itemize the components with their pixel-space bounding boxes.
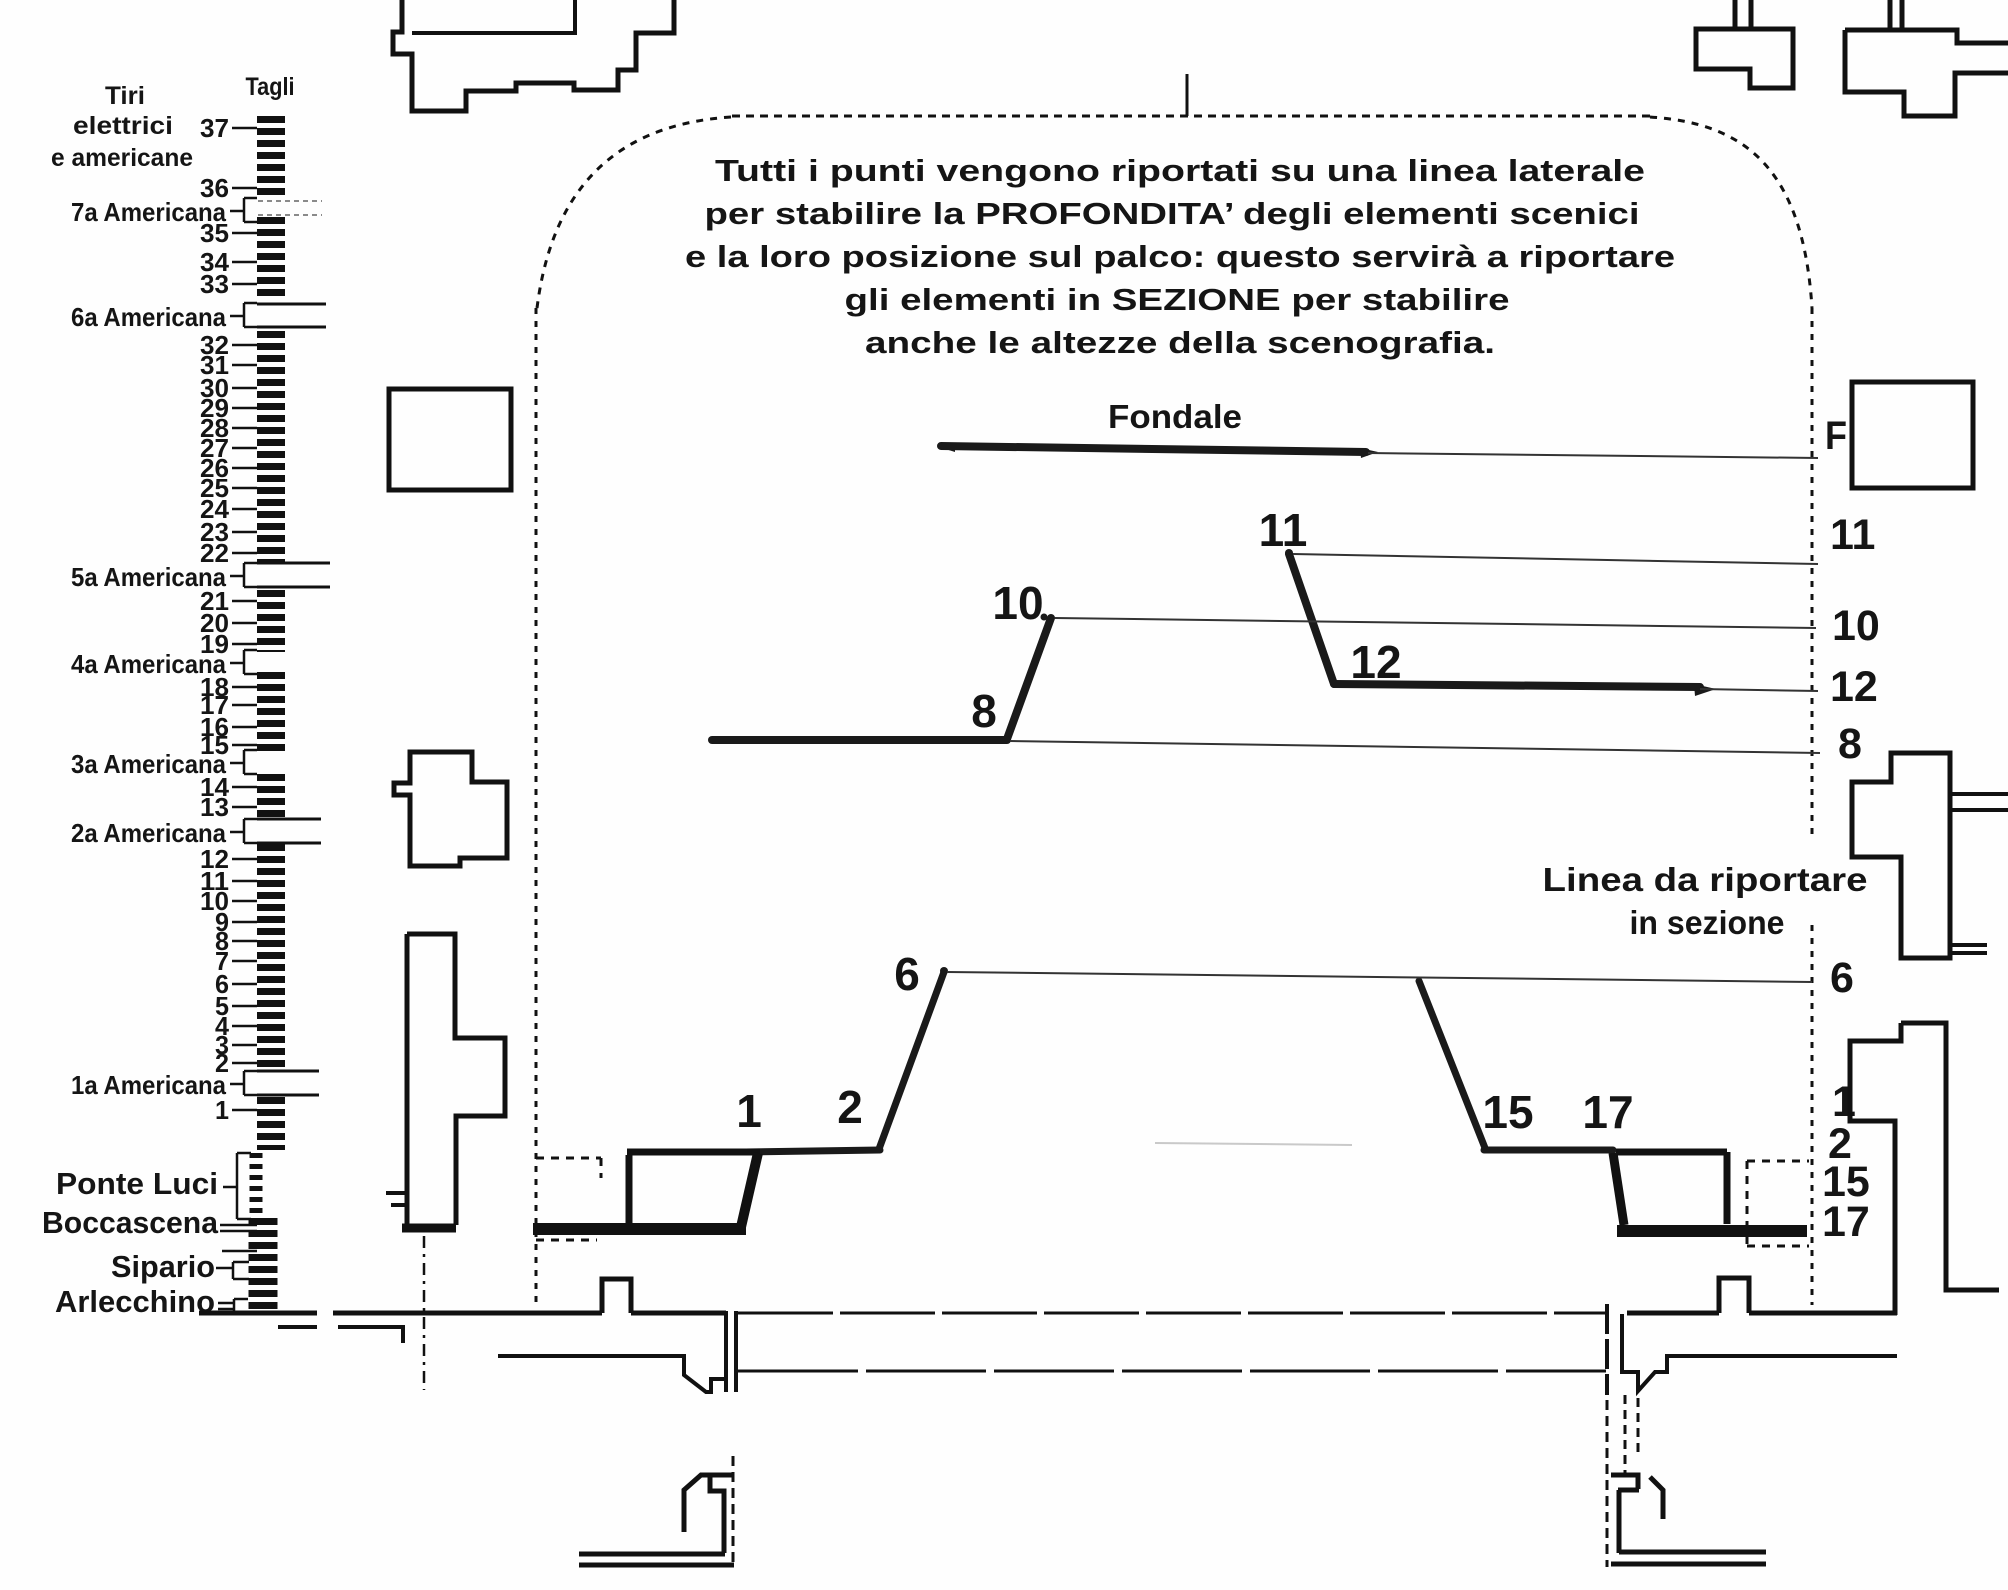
svg-text:in sezione: in sezione <box>1630 904 1785 941</box>
svg-text:17: 17 <box>1822 1198 1870 1246</box>
svg-text:12: 12 <box>1830 663 1878 711</box>
svg-text:e americane: e americane <box>51 144 193 172</box>
svg-text:elettrici: elettrici <box>73 112 173 140</box>
svg-text:10: 10 <box>992 577 1043 629</box>
svg-text:10: 10 <box>1832 602 1880 650</box>
svg-text:Tagli: Tagli <box>246 73 295 101</box>
svg-text:2: 2 <box>837 1081 863 1133</box>
svg-text:e la loro posizione sul palco:: e la loro posizione sul palco: questo se… <box>685 239 1675 274</box>
svg-text:Arlecchino: Arlecchino <box>55 1284 215 1319</box>
svg-text:Linea da riportare: Linea da riportare <box>1543 861 1868 898</box>
svg-text:11: 11 <box>1259 504 1308 556</box>
svg-text:37: 37 <box>200 113 229 143</box>
svg-text:3a Americana: 3a Americana <box>71 749 226 779</box>
svg-text:gli elementi in SEZIONE per st: gli elementi in SEZIONE per stabilire <box>845 282 1510 317</box>
svg-text:12: 12 <box>1350 636 1401 688</box>
svg-text:17: 17 <box>1582 1086 1633 1138</box>
svg-text:6a Americana: 6a Americana <box>71 302 226 332</box>
svg-text:Sipario: Sipario <box>111 1249 215 1284</box>
svg-text:2a Americana: 2a Americana <box>71 818 226 848</box>
svg-text:5a Americana: 5a Americana <box>71 562 226 592</box>
svg-text:1a Americana: 1a Americana <box>71 1070 226 1100</box>
svg-text:4a Americana: 4a Americana <box>71 649 226 679</box>
svg-text:33: 33 <box>200 269 229 299</box>
svg-text:6: 6 <box>1830 954 1854 1002</box>
svg-text:7a Americana: 7a Americana <box>71 197 226 227</box>
svg-text:F: F <box>1825 414 1847 458</box>
svg-text:anche le altezze della scenogr: anche le altezze della scenografia. <box>865 325 1495 360</box>
svg-text:Boccascena: Boccascena <box>42 1205 219 1240</box>
svg-text:Tutti i punti vengono riportat: Tutti i punti vengono riportati su una l… <box>715 153 1645 188</box>
svg-text:Fondale: Fondale <box>1108 398 1242 435</box>
svg-text:11: 11 <box>1830 511 1875 559</box>
svg-text:8: 8 <box>1838 720 1862 768</box>
svg-text:Tiri: Tiri <box>105 82 145 110</box>
svg-text:6: 6 <box>894 948 920 1000</box>
svg-text:15: 15 <box>1482 1086 1533 1138</box>
svg-text:8: 8 <box>971 685 997 737</box>
svg-text:Ponte Luci: Ponte Luci <box>56 1166 218 1201</box>
svg-text:1: 1 <box>736 1085 762 1137</box>
svg-text:per stabilire la PROFONDITA’ d: per stabilire la PROFONDITA’ degli eleme… <box>705 196 1640 231</box>
